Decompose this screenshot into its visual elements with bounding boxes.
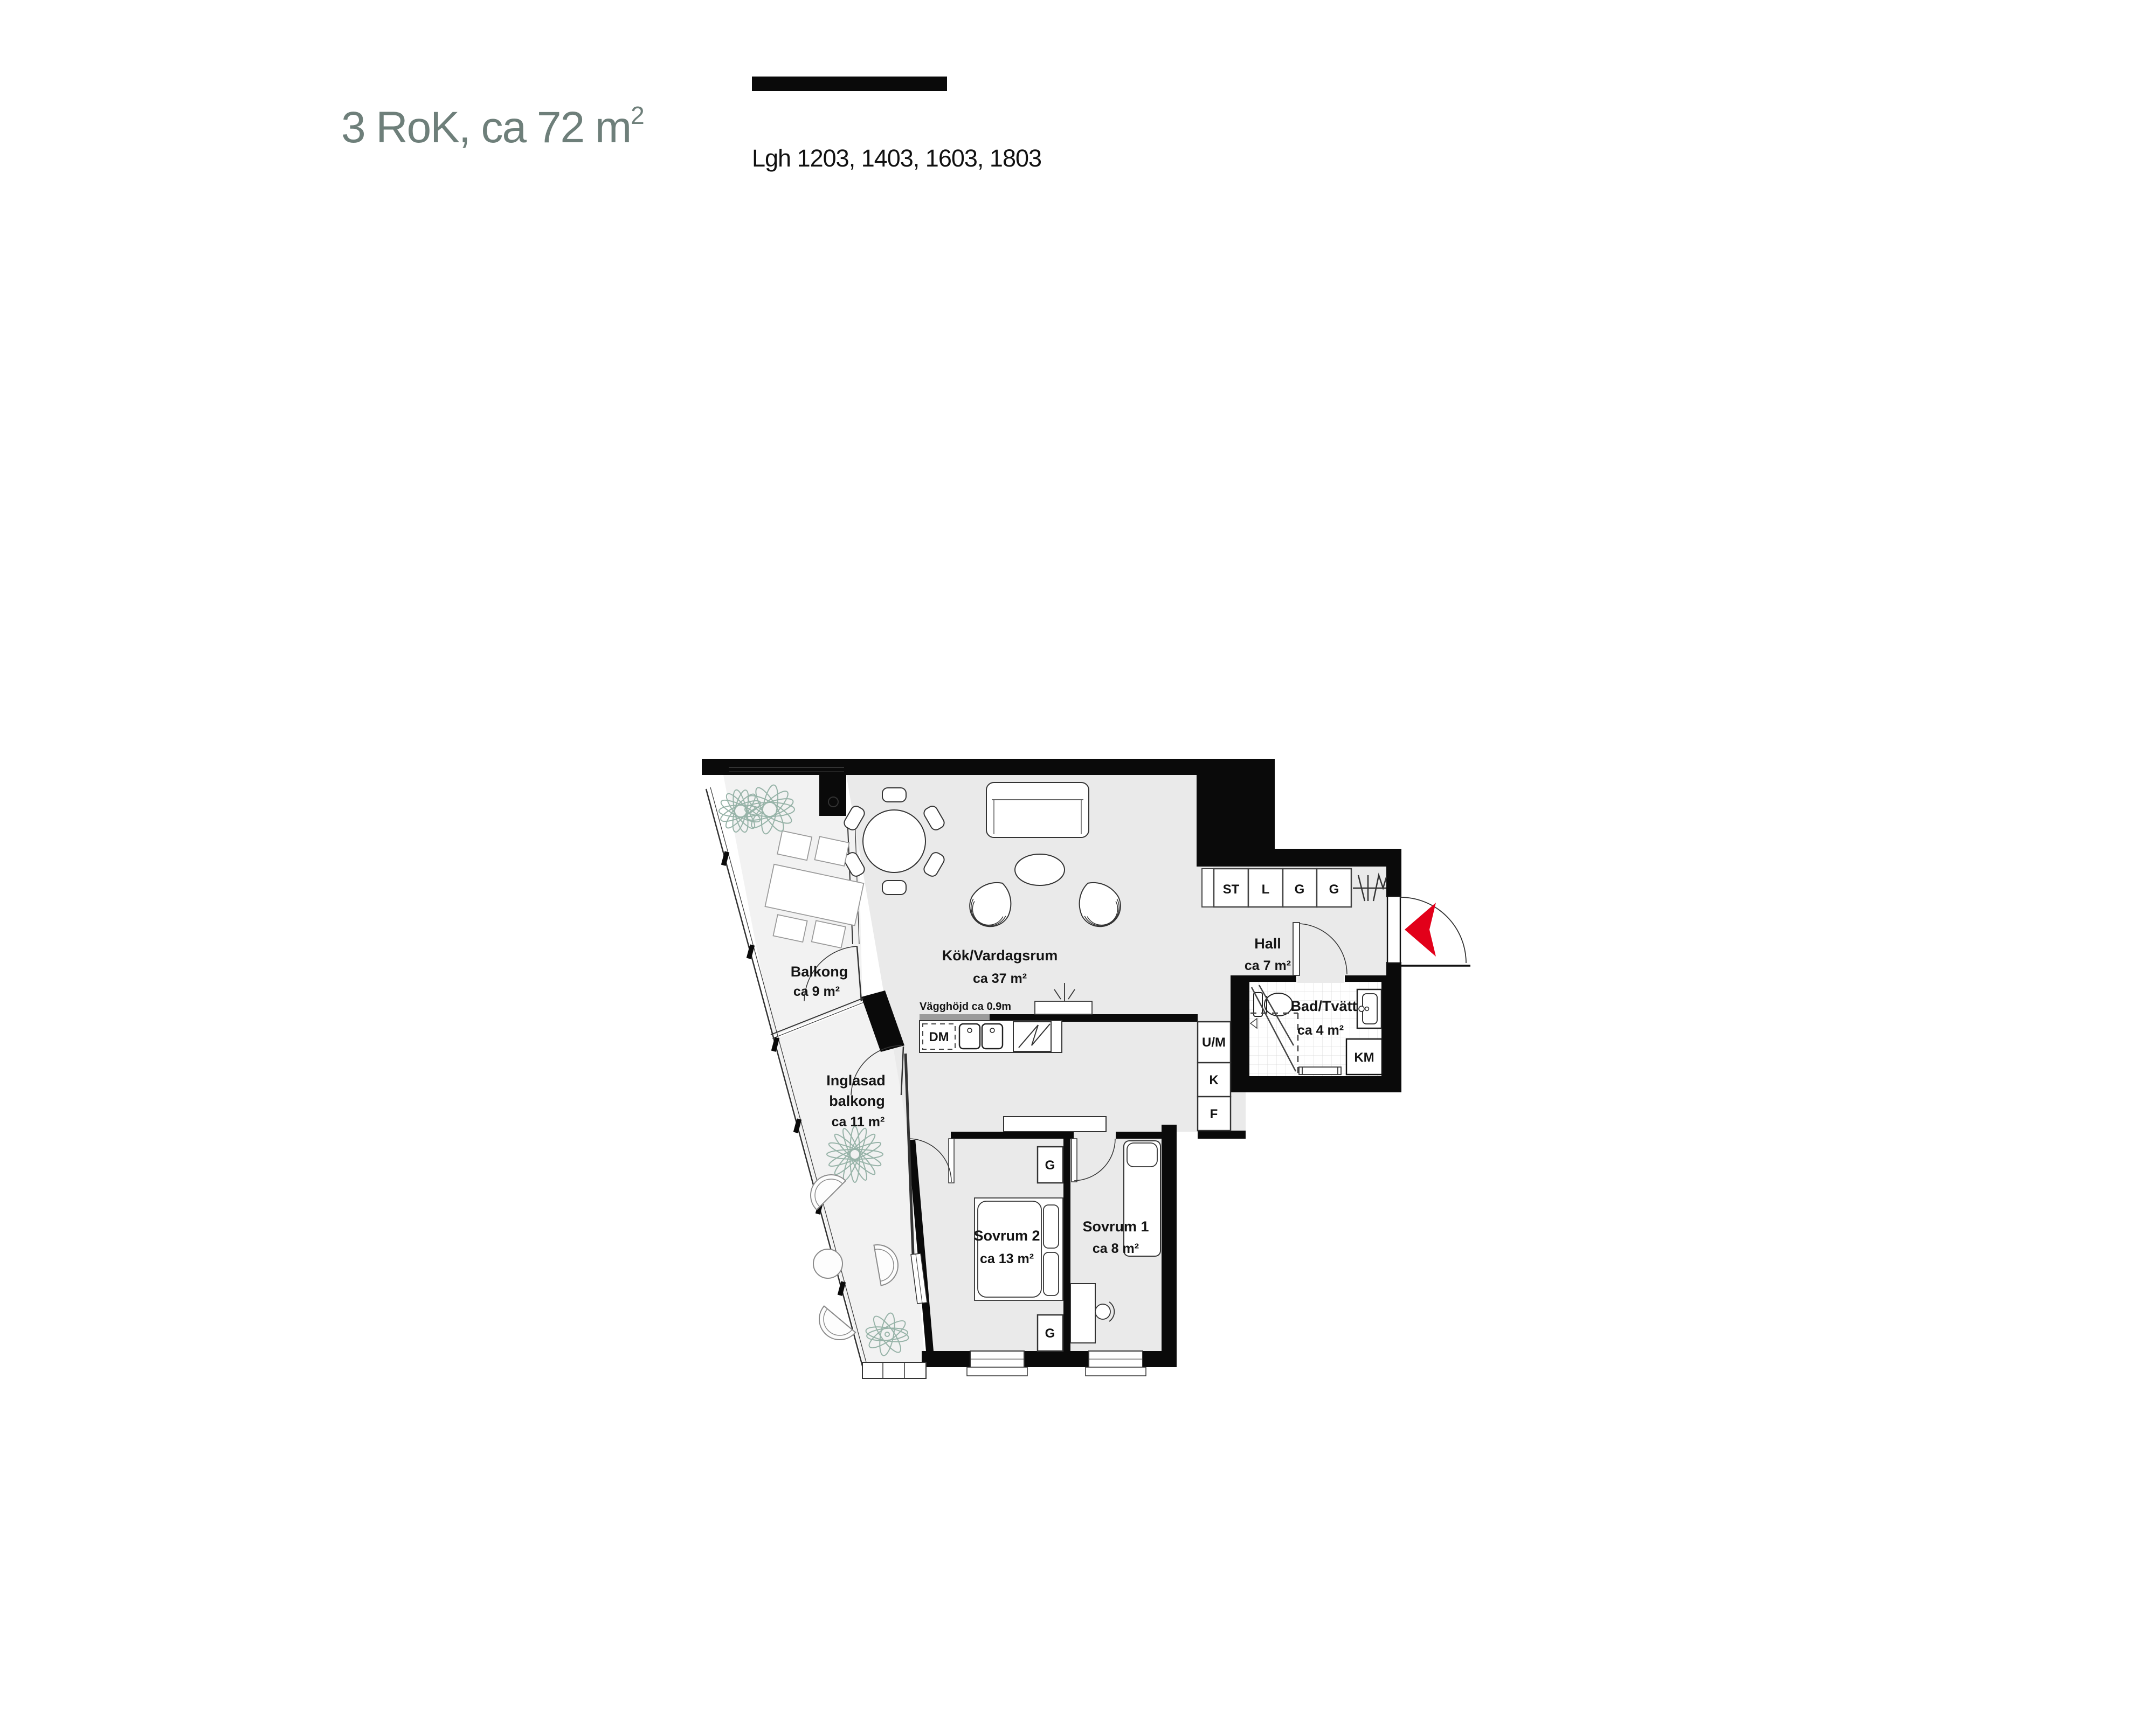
sofa — [986, 782, 1089, 837]
bedroom2-name: Sovrum 2 — [973, 1228, 1040, 1244]
header-divider-bar — [752, 77, 947, 91]
bedroom1-area: ca 8 m² — [1093, 1241, 1139, 1256]
kitchen-column: U/M K F — [1198, 1022, 1231, 1131]
hall-closets: ST L G G — [1202, 869, 1351, 907]
wardrobe-bottom: G — [1038, 1315, 1063, 1351]
glazed-balcony-area: ca 11 m² — [832, 1114, 885, 1130]
column-label-k: K — [1209, 1073, 1219, 1087]
glazed-balcony-bottom-window — [862, 1362, 926, 1378]
closet-label-l: L — [1262, 882, 1270, 897]
wardrobe-top: G — [1038, 1147, 1063, 1183]
bath-area: ca 4 m² — [1297, 1023, 1344, 1038]
sideboard — [1004, 1117, 1106, 1132]
pillow — [1044, 1252, 1059, 1296]
entrance-door — [1387, 896, 1470, 966]
column-label-um: U/M — [1202, 1035, 1226, 1050]
pillow — [1044, 1205, 1059, 1248]
wardrobe-label: G — [1045, 1158, 1055, 1173]
closet-label-st: ST — [1223, 882, 1240, 897]
balcony-area: ca 9 m² — [793, 984, 840, 999]
bedroom1-name: Sovrum 1 — [1082, 1218, 1149, 1235]
sink-icon — [1357, 989, 1381, 1028]
desk — [1070, 1284, 1095, 1343]
apartment-numbers: Lgh 1203, 1403, 1603, 1803 — [752, 144, 1041, 172]
double-bed-mattress — [978, 1201, 1041, 1297]
balcony-name: Balkong — [791, 964, 848, 980]
closet-label-g1: G — [1295, 882, 1305, 897]
hall-area: ca 7 m² — [1245, 958, 1291, 973]
closet-label-g2: G — [1329, 882, 1339, 897]
floor-plan: ST L G G — [690, 744, 1471, 1412]
bath-bench — [1299, 1067, 1341, 1075]
washing-machine: KM — [1346, 1039, 1382, 1075]
washing-machine-label: KM — [1354, 1050, 1374, 1065]
column-label-f: F — [1210, 1107, 1218, 1121]
bath-name: Bad/Tvätt — [1290, 998, 1357, 1014]
wall-height-note: Vägghöjd ca 0.9m — [920, 1001, 1011, 1013]
wardrobe-label: G — [1045, 1326, 1055, 1341]
page-title: 3 RoK, ca 72 m2 — [341, 102, 644, 153]
hall-name: Hall — [1254, 936, 1281, 952]
dishwasher-label: DM — [929, 1030, 949, 1044]
bedroom2-area: ca 13 m² — [980, 1251, 1034, 1266]
title-superscript: 2 — [631, 101, 644, 129]
stove-icon — [1013, 1022, 1051, 1051]
glazed-balcony-name-2: balkong — [829, 1093, 885, 1109]
floor-plan-page: { "header": { "title_prefix": "3 RoK, ca… — [0, 0, 2156, 1718]
single-bed-pillow — [1127, 1143, 1157, 1167]
coffee-table — [1015, 854, 1065, 885]
entrance-arrow-icon — [1405, 903, 1436, 957]
glazed-balcony-name-1: Inglasad — [826, 1072, 886, 1089]
living-area: ca 37 m² — [973, 971, 1027, 986]
living-name: Kök/Vardagsrum — [942, 947, 1058, 964]
